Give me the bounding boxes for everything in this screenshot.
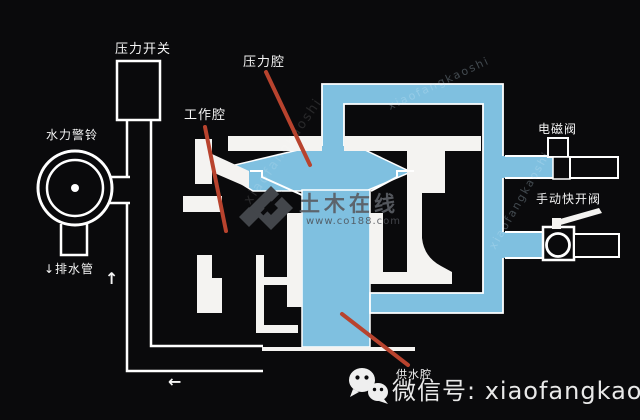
bonnet-top-right bbox=[344, 136, 481, 151]
drain-pipe-label: ↓排水管 bbox=[44, 261, 94, 276]
ball-valve-ball bbox=[547, 234, 570, 257]
solenoid-valve-label: 电磁阀 bbox=[538, 121, 577, 136]
solenoid-outlet-pipe bbox=[570, 157, 618, 178]
manual-valve-label: 手动快开阀 bbox=[536, 192, 601, 206]
alarm-bell-label: 水力警铃 bbox=[46, 127, 98, 142]
riser-wall-left bbox=[287, 213, 302, 307]
working-chamber-label: 工作腔 bbox=[184, 108, 226, 123]
deluge-valve-diagram: 土木在线 www.co188.com xiaofangkaoshi xiaofa… bbox=[0, 0, 640, 420]
flow-arrow-left: ← bbox=[168, 372, 181, 391]
screenshot-root: 土木在线 www.co188.com xiaofangkaoshi xiaofa… bbox=[0, 0, 640, 420]
bell-center-dot bbox=[71, 184, 79, 192]
watermark-site-text: www.co188.com bbox=[306, 216, 401, 227]
working-chamber-top-wall bbox=[183, 196, 222, 212]
flow-arrow-up: ↑ bbox=[105, 269, 118, 288]
wechat-id-line: 微信号: xiaofangkaoshi bbox=[392, 377, 640, 405]
wechat-id: xiaofangkaoshi bbox=[476, 377, 640, 405]
pressure-switch-box bbox=[117, 61, 160, 120]
hydraulic-alarm-bell bbox=[38, 151, 112, 225]
inlet-flange-wall bbox=[256, 255, 264, 333]
manual-valve-branch-pipe bbox=[500, 232, 545, 258]
pressure-switch-label: 压力开关 bbox=[115, 42, 171, 57]
inlet-flange-ledge-bottom bbox=[264, 325, 298, 333]
priming-pipe-neck-joint bbox=[321, 146, 345, 154]
solenoid-plunger bbox=[553, 157, 570, 179]
bell-drain-stub bbox=[61, 224, 87, 255]
wechat-bubble-small bbox=[368, 383, 388, 401]
inlet-flange-ledge-top bbox=[264, 277, 298, 285]
wechat-label: 微信号: bbox=[392, 377, 476, 405]
pressure-chamber-label: 压力腔 bbox=[243, 55, 285, 70]
manual-valve-outlet-pipe bbox=[574, 234, 619, 257]
watermark-logo-text: 土木在线 bbox=[299, 192, 399, 216]
